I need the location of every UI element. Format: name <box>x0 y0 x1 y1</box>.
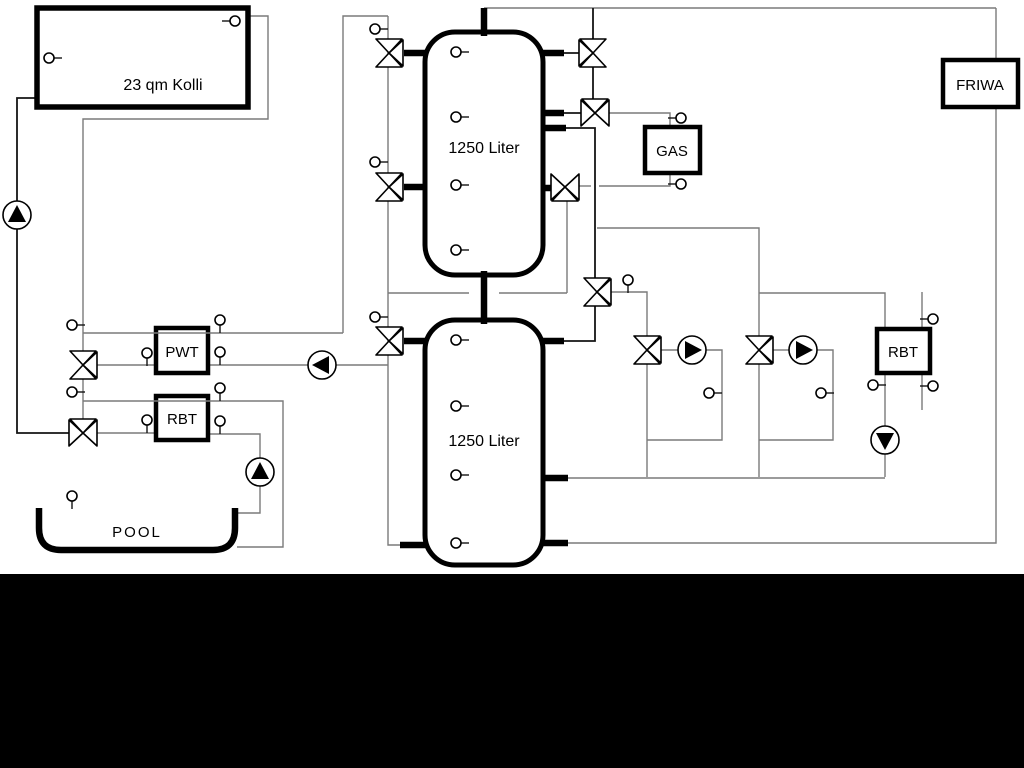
friwa-label: FRIWA <box>956 77 1004 94</box>
three-way-valve-solar-pwt <box>70 351 97 379</box>
pipe-tank-left-rail <box>388 16 404 545</box>
collector-label: 23 qm Kolli <box>123 77 202 94</box>
sensor-pwt-out-top <box>215 315 225 333</box>
sensor-circuit1 <box>704 388 722 398</box>
three-way-valve-circuit1 <box>634 336 661 364</box>
sensor-rbt-out-top <box>215 383 225 401</box>
schematic-canvas: 23 qm Kolli 1250 Liter 1250 Liter PWT RB… <box>0 0 1024 768</box>
three-way-valve-tank-upper-mid <box>376 173 403 201</box>
pump-rbt-right <box>871 426 899 454</box>
rbt-right-label: RBT <box>888 344 918 361</box>
tank-upper-label: 1250 Liter <box>448 140 520 157</box>
three-way-valve-circuit2 <box>746 336 773 364</box>
sensor-pool <box>67 491 77 509</box>
gas-label: GAS <box>656 143 688 160</box>
sensor-tankrail-low <box>370 312 388 322</box>
pipe-collector-return <box>17 98 69 433</box>
sensor-rbt-in <box>142 415 152 433</box>
sensor-pwt-out-mid <box>215 347 225 365</box>
sensor-heating-supply <box>623 275 633 293</box>
schematic-page: 23 qm Kolli 1250 Liter 1250 Liter PWT RB… <box>0 0 1024 768</box>
bottom-black-bar <box>0 574 1024 768</box>
pump-circuit1 <box>678 336 706 364</box>
pipe-boiler-riser <box>565 128 595 279</box>
pipe-circuit1-rail <box>610 292 647 477</box>
rbt-left-label: RBT <box>167 411 197 428</box>
pump-pwt-secondary <box>308 351 336 379</box>
sensor-pwt-in <box>142 348 152 366</box>
sensor-rbt-out-mid <box>215 416 225 434</box>
pump-solar-collector <box>3 201 31 229</box>
sensor-rbt-right-return <box>868 380 886 390</box>
sensor-tankrail-top <box>370 24 388 34</box>
sensor-circuit2 <box>816 388 834 398</box>
pump-circuit2 <box>789 336 817 364</box>
pwt-label: PWT <box>165 344 198 361</box>
pipe-pump-to-pool <box>237 486 260 513</box>
pump-pool <box>246 458 274 486</box>
pipe-rbt2-supply <box>759 293 885 329</box>
three-way-valve-tank-upper-top <box>376 39 403 67</box>
three-way-valve-tank-lower-top <box>376 327 403 355</box>
three-way-valve-gas-supply <box>581 99 609 126</box>
three-way-valve-solar-pool <box>69 419 97 446</box>
pipe-v7-to-tank <box>563 305 595 341</box>
pipe-rbt-to-poolpump <box>208 434 260 458</box>
pool-label: POOL <box>112 524 162 541</box>
three-way-valve-dhw-top <box>579 39 606 67</box>
three-way-valve-gas-return <box>551 174 579 201</box>
tank-lower-label: 1250 Liter <box>448 433 520 450</box>
three-way-valve-heating-supply <box>584 278 611 306</box>
sensor-tankrail-mid <box>370 157 388 167</box>
